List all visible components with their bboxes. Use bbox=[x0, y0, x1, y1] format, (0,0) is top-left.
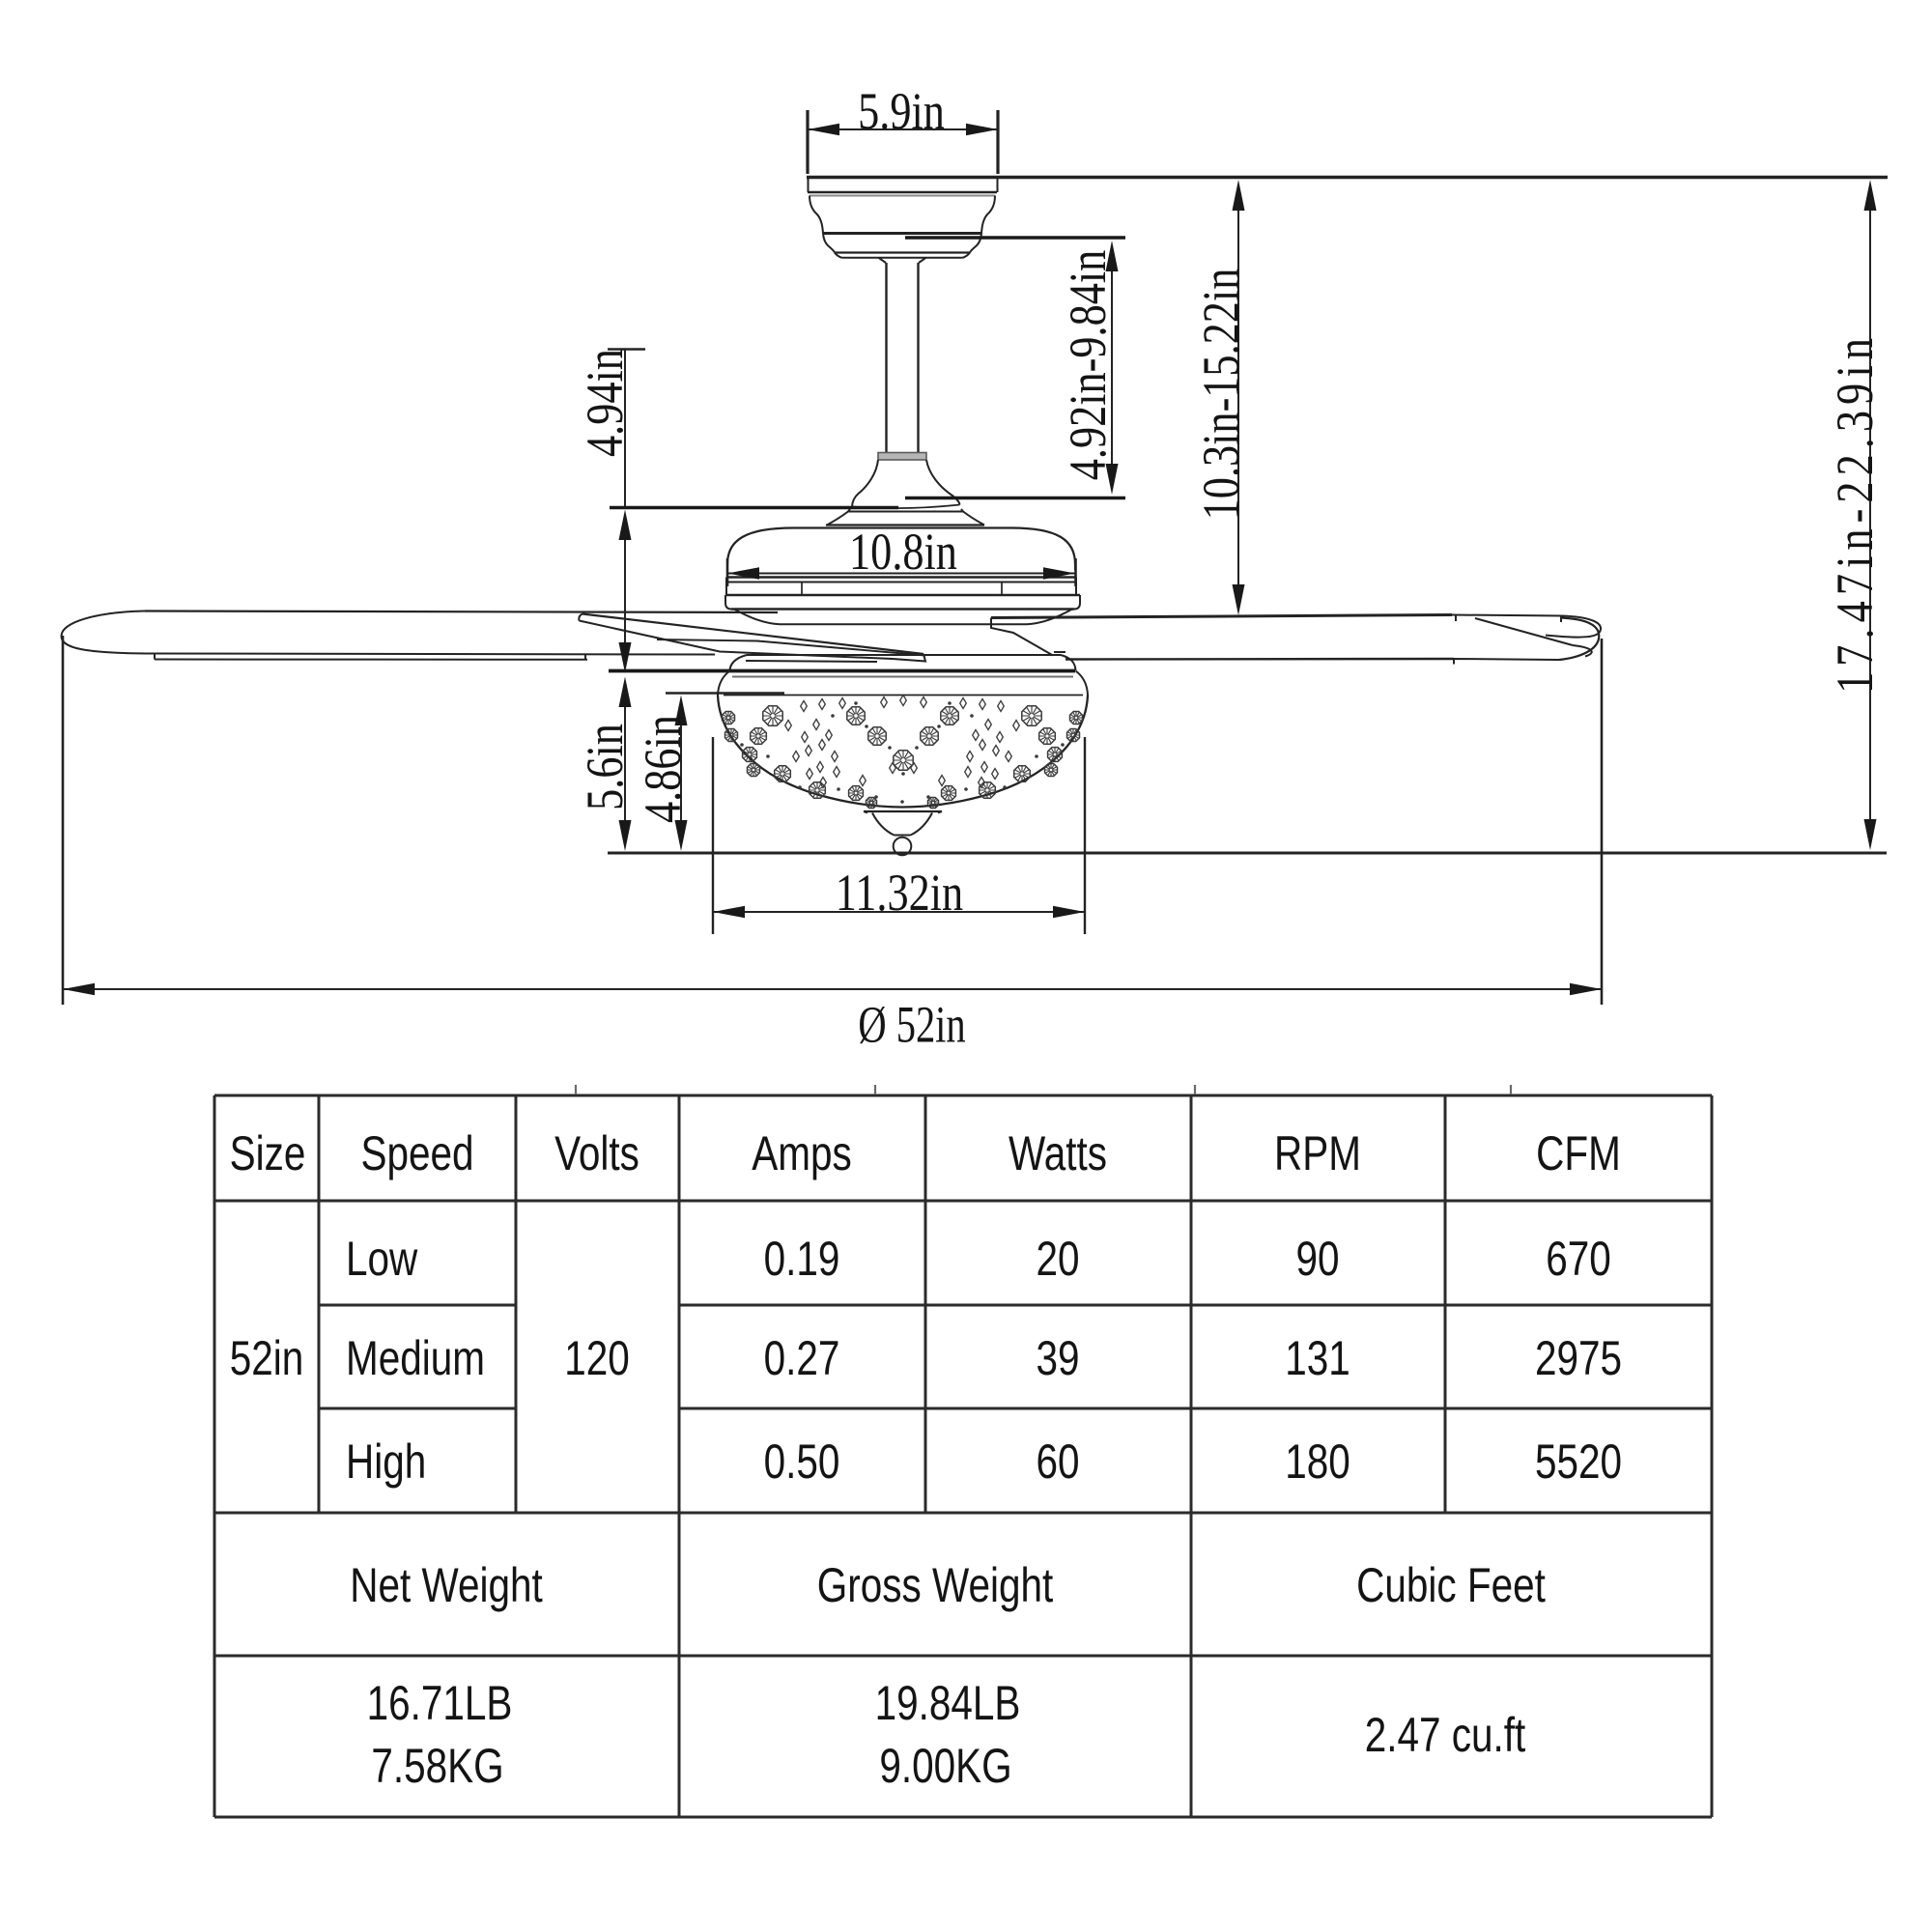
svg-text:9.00KG: 9.00KG bbox=[879, 1739, 1011, 1793]
svg-text:5520: 5520 bbox=[1535, 1435, 1622, 1489]
svg-text:0.50: 0.50 bbox=[764, 1435, 840, 1489]
svg-text:670: 670 bbox=[1546, 1232, 1611, 1286]
svg-text:120: 120 bbox=[564, 1331, 630, 1385]
svg-text:5.9in: 5.9in bbox=[858, 82, 945, 140]
svg-text:2.47 cu.ft: 2.47 cu.ft bbox=[1365, 1708, 1526, 1762]
svg-text:4.86in: 4.86in bbox=[634, 715, 692, 823]
svg-text:Medium: Medium bbox=[346, 1331, 485, 1385]
svg-text:Size: Size bbox=[230, 1126, 306, 1180]
svg-text:Ø 52in: Ø 52in bbox=[858, 996, 965, 1054]
svg-text:Speed: Speed bbox=[360, 1126, 473, 1180]
svg-text:0.27: 0.27 bbox=[764, 1331, 840, 1385]
svg-text:RPM: RPM bbox=[1274, 1126, 1361, 1180]
svg-text:Net Weight: Net Weight bbox=[350, 1558, 543, 1612]
svg-text:CFM: CFM bbox=[1536, 1126, 1621, 1180]
svg-text:52in: 52in bbox=[230, 1331, 304, 1385]
svg-text:60: 60 bbox=[1036, 1435, 1079, 1489]
svg-text:10.3in-15.22in: 10.3in-15.22in bbox=[1192, 269, 1250, 521]
svg-text:Gross Weight: Gross Weight bbox=[817, 1558, 1054, 1612]
svg-text:131: 131 bbox=[1285, 1331, 1350, 1385]
svg-text:0.19: 0.19 bbox=[764, 1232, 840, 1286]
svg-text:4.94in: 4.94in bbox=[576, 349, 634, 457]
svg-text:180: 180 bbox=[1285, 1435, 1350, 1489]
svg-text:5.6in: 5.6in bbox=[576, 724, 634, 810]
svg-text:High: High bbox=[346, 1435, 426, 1489]
svg-text:17.47in-22.39in: 17.47in-22.39in bbox=[1826, 332, 1884, 694]
svg-text:10.8in: 10.8in bbox=[849, 523, 957, 581]
svg-text:90: 90 bbox=[1295, 1232, 1339, 1286]
svg-text:7.58KG: 7.58KG bbox=[371, 1739, 503, 1793]
svg-text:20: 20 bbox=[1036, 1232, 1079, 1286]
svg-text:39: 39 bbox=[1036, 1331, 1079, 1385]
svg-text:Volts: Volts bbox=[554, 1126, 639, 1180]
svg-text:4.92in-9.84in: 4.92in-9.84in bbox=[1059, 250, 1117, 481]
svg-text:Cubic Feet: Cubic Feet bbox=[1356, 1558, 1546, 1612]
svg-text:Watts: Watts bbox=[1009, 1126, 1107, 1180]
svg-text:16.71LB: 16.71LB bbox=[367, 1676, 513, 1730]
svg-text:Amps: Amps bbox=[752, 1126, 851, 1180]
svg-text:2975: 2975 bbox=[1535, 1331, 1622, 1385]
svg-text:19.84LB: 19.84LB bbox=[875, 1676, 1021, 1730]
svg-text:11.32in: 11.32in bbox=[836, 864, 963, 922]
svg-text:Low: Low bbox=[346, 1232, 417, 1286]
